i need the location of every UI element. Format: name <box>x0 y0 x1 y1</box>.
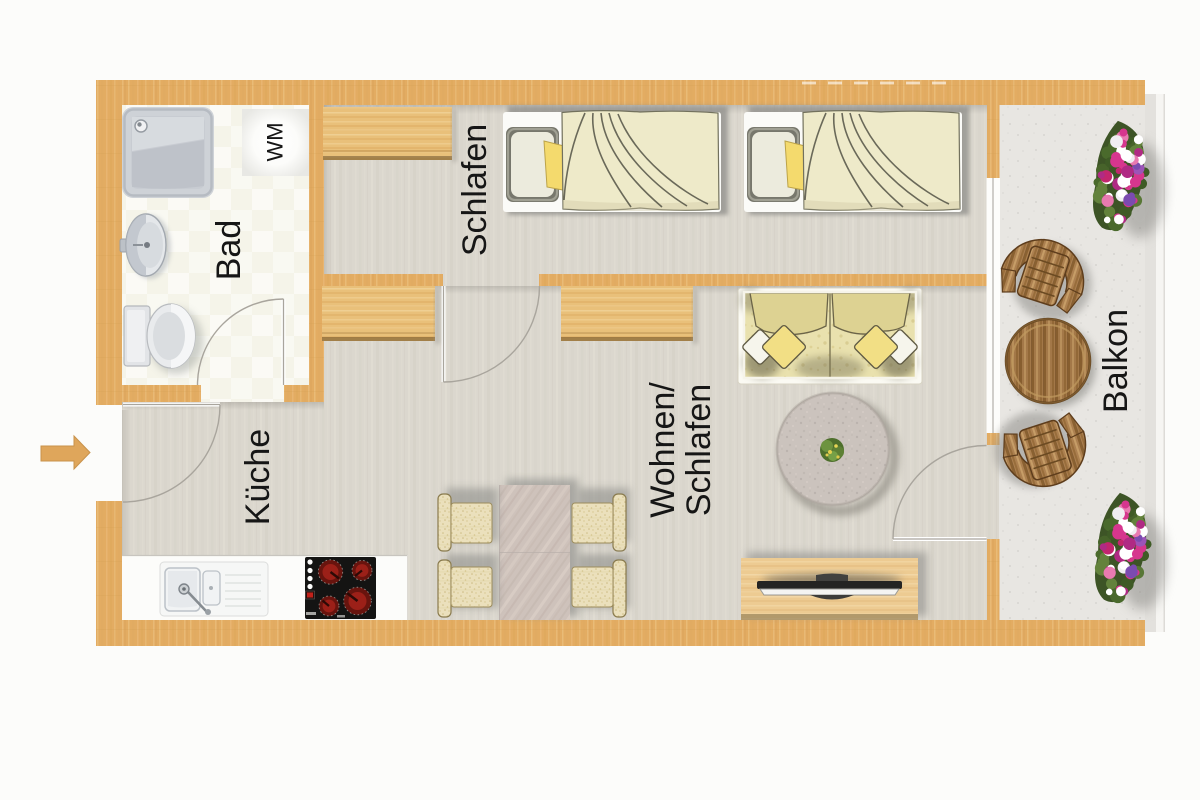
svg-text:Schlafen: Schlafen <box>680 384 718 516</box>
svg-text:Wohnen/: Wohnen/ <box>644 382 682 518</box>
svg-text:Balkon: Balkon <box>1097 309 1135 413</box>
svg-text:Küche: Küche <box>239 429 277 525</box>
svg-text:WM: WM <box>263 122 288 161</box>
svg-text:Schlafen: Schlafen <box>456 124 494 256</box>
svg-text:Bad: Bad <box>210 220 248 281</box>
